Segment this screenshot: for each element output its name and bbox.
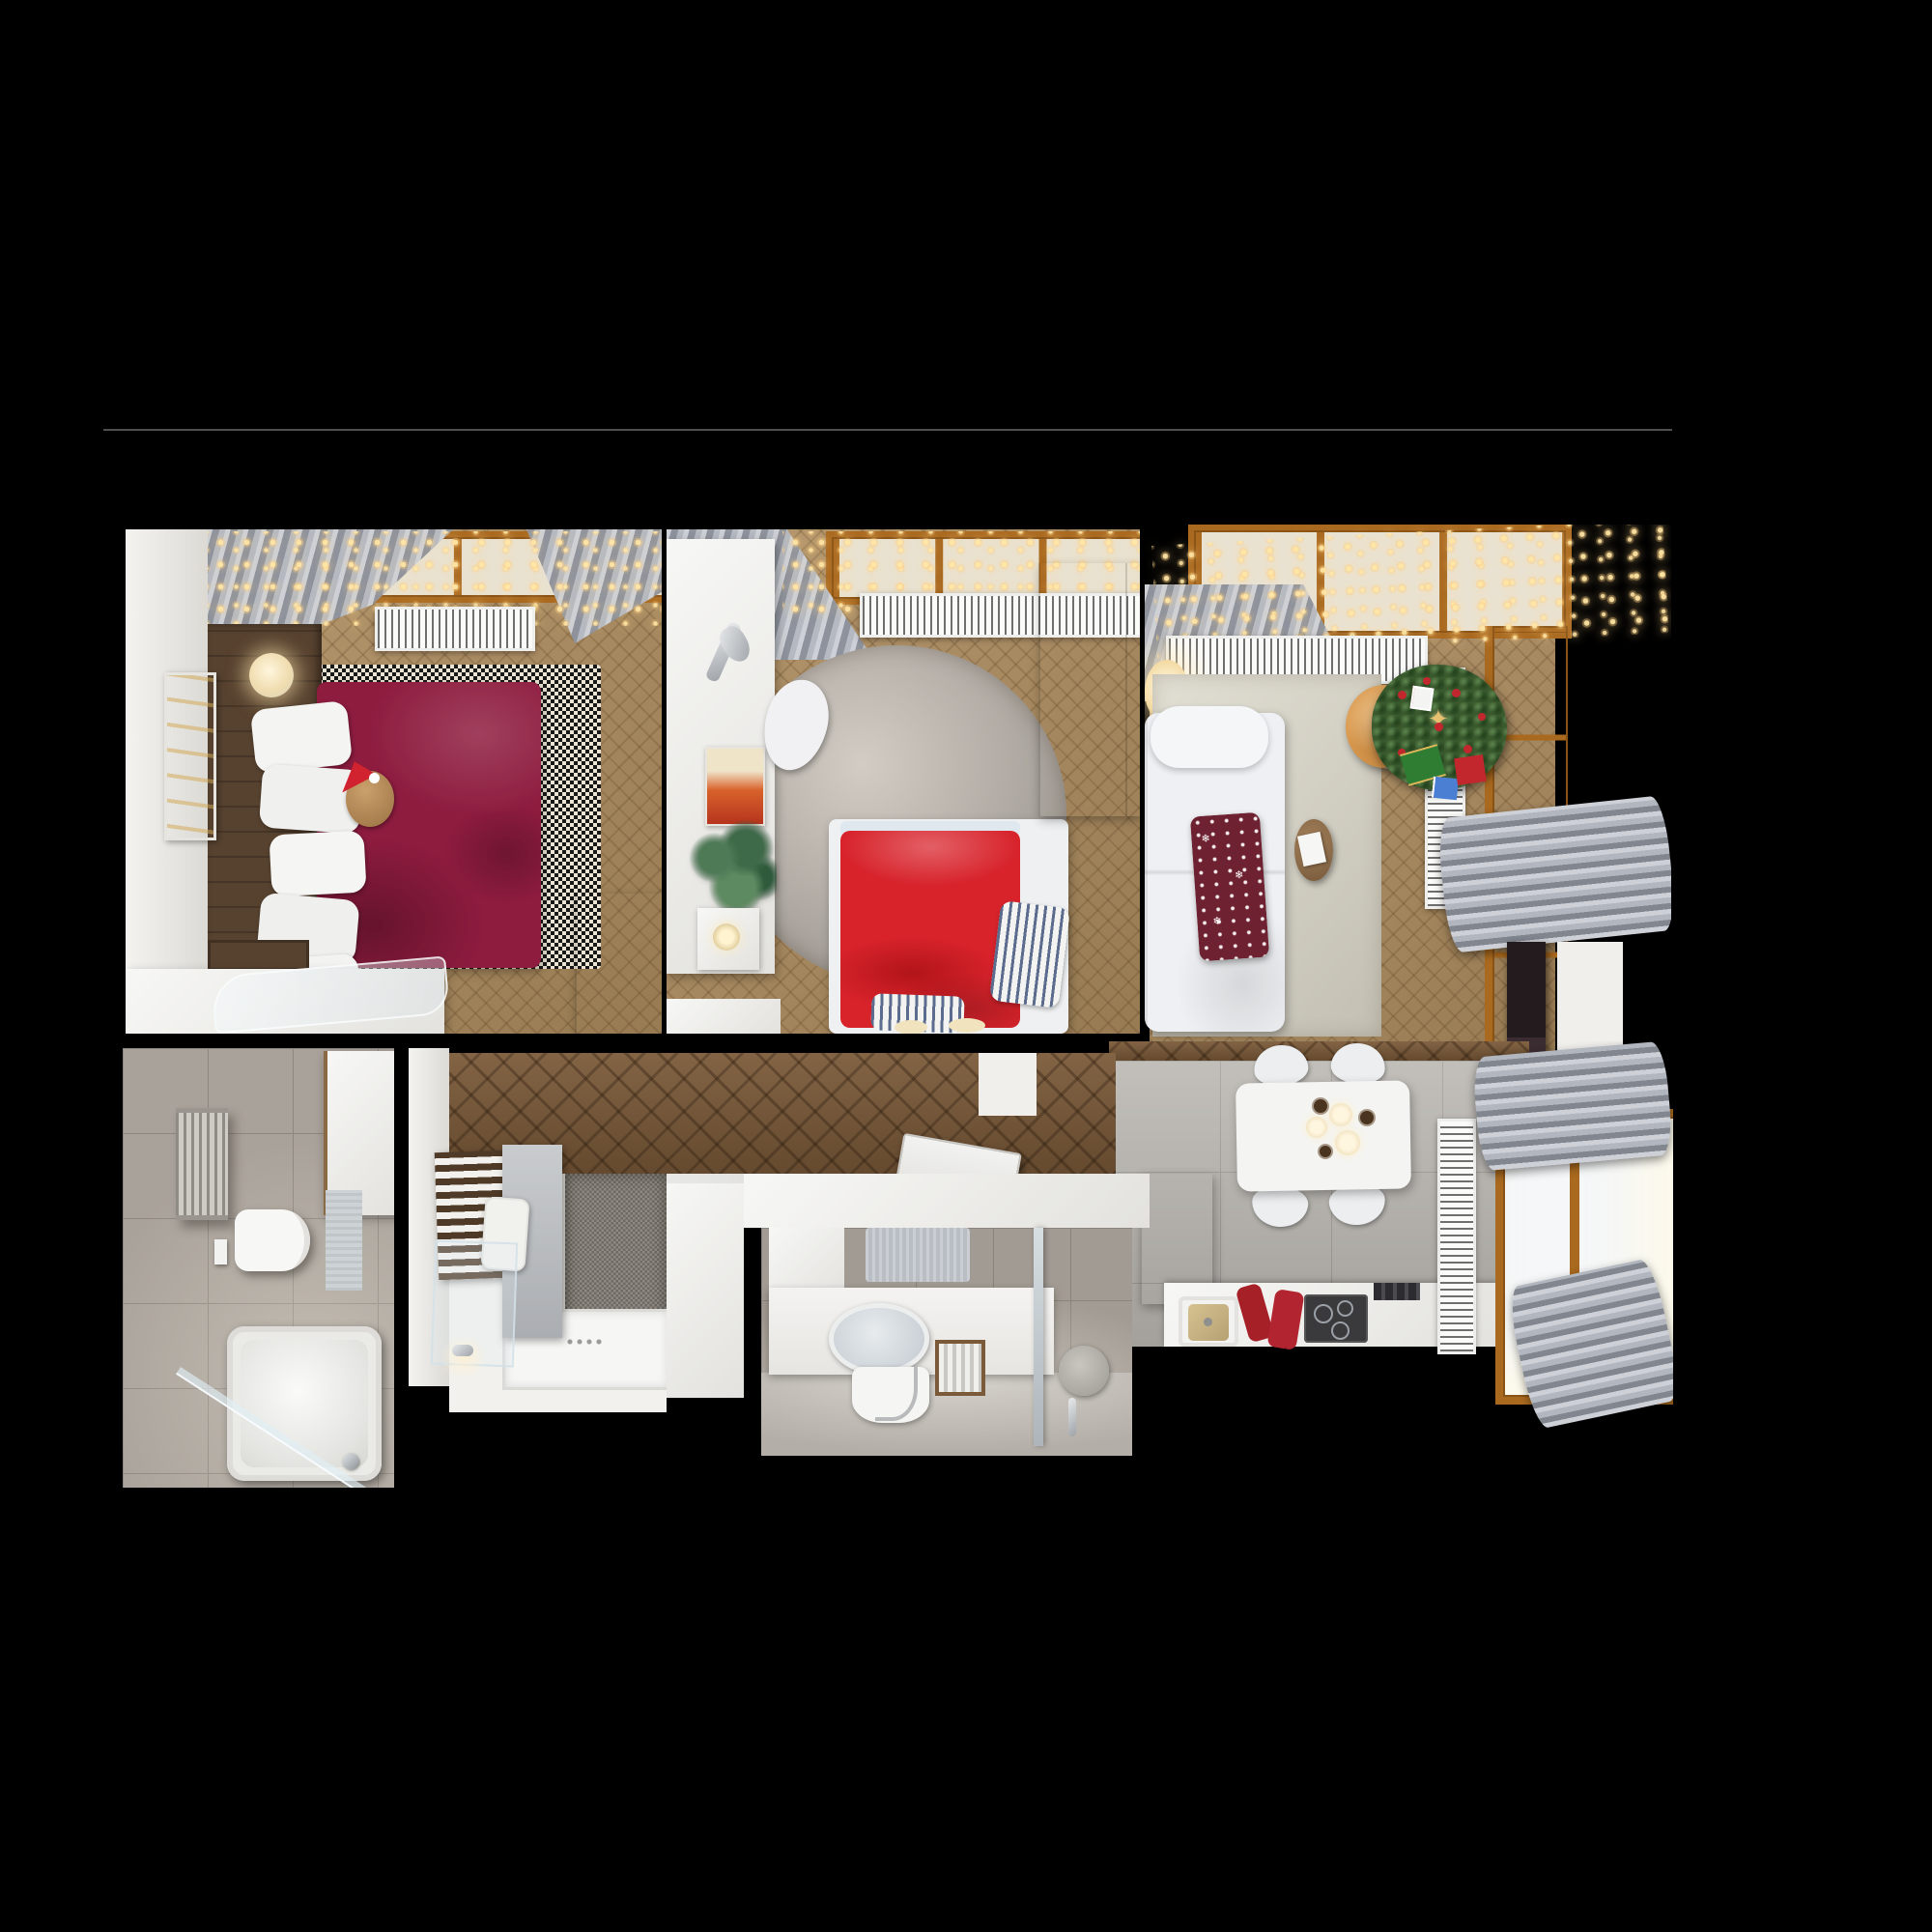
centerpiece-candle [1335,1130,1360,1155]
shower-faucet [452,1345,473,1356]
bath2-shower-faucet [1068,1398,1076,1436]
floor-plan-canvas: ❄ ❄ ❄ ✦ [0,0,1932,1932]
centerpiece-ornament [1314,1099,1327,1113]
santa-hat-pom [369,773,380,783]
desk-plant [688,819,777,916]
hallway-wall-piece [979,1053,1037,1116]
tree-bauble [1423,677,1431,685]
bathroom-main [123,1048,394,1488]
gift-box-blue [1432,777,1459,801]
gift-box-white [1409,686,1434,712]
living-curtain-right [1435,795,1671,953]
oval-mirror [829,1303,929,1375]
snowflake-icon: ❄ [1212,916,1222,927]
bath2-top-wall [744,1174,1150,1228]
master-nightstand-shelf [208,940,309,971]
fox-poster [705,747,765,826]
nordic-throw: ❄ ❄ ❄ [1190,812,1269,962]
master-wall-artwork [164,672,216,840]
tree-bauble [1452,689,1461,697]
centerpiece-candle [1306,1117,1327,1138]
tree-bauble [1398,691,1406,699]
master-pillow-1 [250,700,353,774]
tree-bauble [1463,745,1472,753]
hallway-builtin-slab [667,1174,744,1398]
cooktop-burner [1337,1300,1353,1317]
master-radiator [375,607,535,651]
master-pillow-3 [269,830,366,896]
bathroom-second [744,1174,1150,1456]
kitchen-curtain-top [1471,1041,1673,1171]
slipper-right [949,1018,985,1033]
centerpiece-candle [1329,1103,1352,1126]
centerpiece-ornament [1360,1111,1374,1124]
master-wardrobe [575,894,662,1034]
top-divider-line [103,429,1672,431]
cooktop-burner [1314,1304,1333,1323]
cooktop-burner [1331,1321,1350,1340]
snowflake-icon: ❄ [1201,833,1210,844]
shower-drain-dots [565,1336,604,1348]
sink-drain [1204,1318,1212,1326]
kids-tall-cabinet [1038,563,1140,816]
centerpiece-ornament [1320,1146,1331,1157]
bath-mat [326,1190,362,1291]
light-switch [214,1239,227,1264]
slipper-left [895,1020,927,1034]
gift-box-red [1454,754,1487,785]
counter-vent-slots [1374,1283,1420,1300]
framed-towel-radiator [935,1340,985,1396]
kids-pillow-right [989,900,1070,1009]
master-sconce-lamp-top [249,653,294,697]
bath2-shower-glass [1034,1228,1043,1446]
kitchen-counter-front [1111,1347,1560,1457]
kitchen-dining [1082,1041,1673,1457]
tree-bauble [1478,713,1486,721]
tv-wall [1557,942,1623,1051]
dining-table [1236,1080,1411,1191]
master-bedroom [126,529,662,1034]
towel-radiator [176,1108,228,1220]
kids-bedroom [667,529,1140,1034]
shower-faucet-glow [437,1338,491,1377]
snowflake-icon: ❄ [1235,869,1244,881]
kids-bench [667,999,781,1034]
tree-bauble [1435,723,1443,731]
tub-faucet [343,1454,358,1469]
kitchen-radiator-vertical [1437,1119,1476,1354]
bath2-round-mirror [1059,1346,1109,1396]
bath2-towel [866,1228,970,1282]
kitchen-wood-strip [1109,1041,1529,1061]
toilet [235,1209,310,1271]
candle-icon [713,923,740,951]
